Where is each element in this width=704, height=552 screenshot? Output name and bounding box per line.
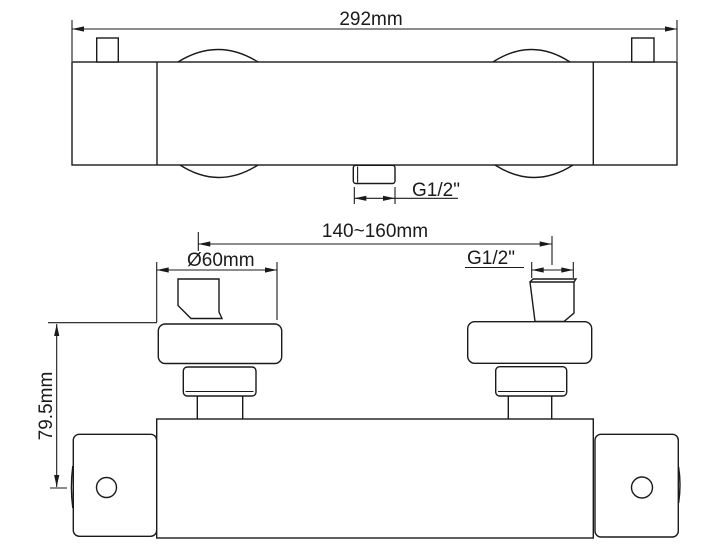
- arrowhead-left: [157, 267, 169, 272]
- arrowhead-right: [265, 267, 277, 272]
- shower-valve-drawing: 292mm G1/2": [0, 0, 704, 552]
- left-inlet-thread-connector: [178, 279, 222, 319]
- left-knob-top-arc: [178, 50, 258, 63]
- left-escutcheon: [158, 324, 281, 364]
- shower-outlet: [353, 165, 395, 183]
- arrowhead-bottom: [54, 475, 59, 487]
- arrowhead-right: [561, 267, 573, 272]
- dim-inlet-thread: G1/2": [465, 248, 573, 278]
- right-knob-top-arc: [493, 50, 570, 63]
- arrowhead-left: [354, 196, 366, 201]
- left-knob-bottom-arc: [180, 165, 258, 178]
- left-knob-button: [97, 38, 119, 62]
- left-inlet-assembly: [158, 279, 281, 419]
- right-inlet-assembly: [468, 279, 592, 419]
- dim-label-inlet-spacing: 140~160mm: [322, 221, 428, 242]
- right-inlet-thread-connector: [530, 282, 574, 322]
- arrowhead-left: [532, 267, 544, 272]
- dim-label-inlet-thread: G1/2": [467, 248, 515, 269]
- arrowhead-left: [72, 26, 84, 31]
- dim-label-mount-height: 79.5mm: [36, 372, 57, 441]
- arrowhead-left: [198, 241, 210, 246]
- technical-drawing-page: 292mm G1/2": [0, 0, 704, 552]
- right-escutcheon: [468, 322, 592, 364]
- left-plate-edge-arc: [71, 466, 72, 508]
- front-view: 140~160mm Ø60mm G1/2": [36, 221, 680, 538]
- dim-label-escutcheon-diameter: Ø60mm: [187, 250, 255, 271]
- valve-body-top-view: [72, 62, 677, 165]
- right-knob-button: [632, 38, 654, 62]
- arrowhead-right: [540, 241, 552, 246]
- right-mounting-plate: [595, 434, 678, 537]
- top-view: 292mm G1/2": [72, 9, 677, 204]
- left-mounting-plate: [73, 434, 156, 536]
- arrowhead-right: [665, 26, 677, 31]
- valve-body-front-view: [157, 419, 594, 538]
- dim-overall-width: 292mm: [72, 9, 677, 61]
- arrowhead-top: [54, 324, 59, 336]
- dim-label-overall-width: 292mm: [339, 9, 402, 30]
- right-knob-bottom-arc: [495, 165, 573, 178]
- arrowhead-right: [383, 196, 395, 201]
- dim-label-outlet-thread: G1/2": [412, 180, 460, 201]
